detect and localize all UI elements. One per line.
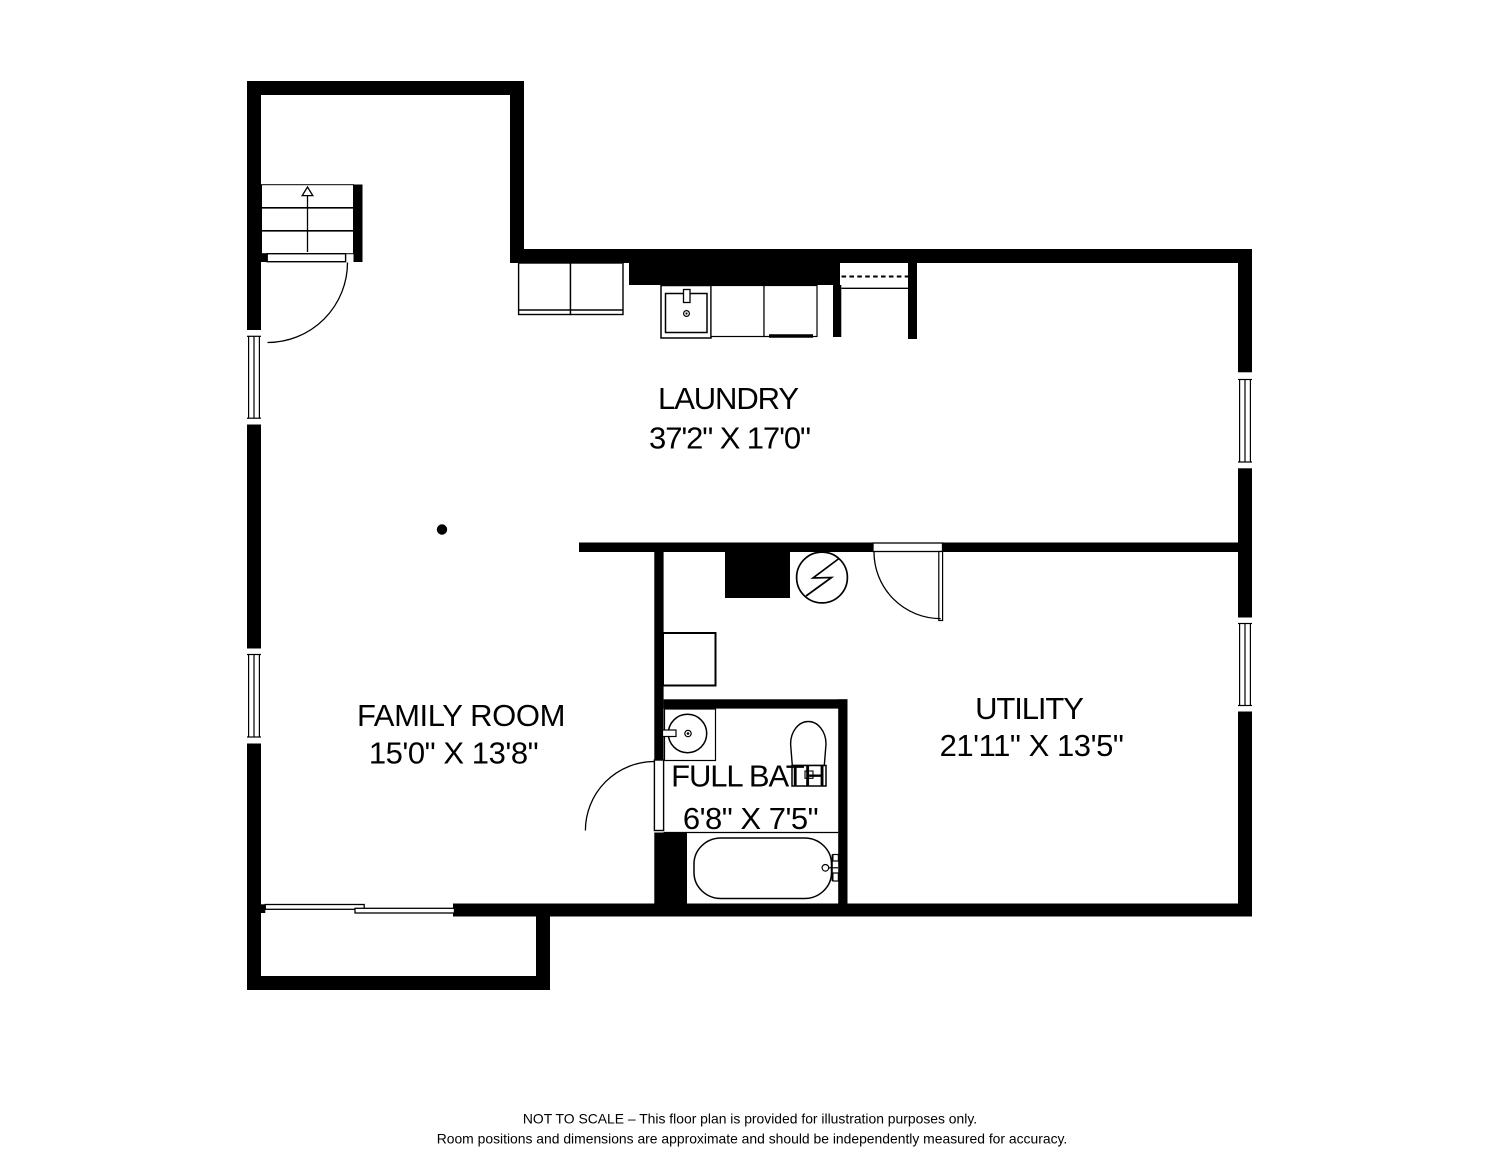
svg-text:NOT TO SCALE – This floor plan: NOT TO SCALE – This floor plan is provid… [523, 1111, 977, 1127]
svg-text:6'8" X 7'5": 6'8" X 7'5" [683, 801, 818, 836]
svg-text:UTILITY: UTILITY [975, 691, 1083, 726]
svg-text:21'11" X 13'5": 21'11" X 13'5" [940, 728, 1124, 763]
svg-text:FAMILY ROOM: FAMILY ROOM [357, 698, 565, 733]
svg-text:FULL BATH: FULL BATH [671, 759, 825, 794]
svg-text:Room positions and dimensions: Room positions and dimensions are approx… [437, 1131, 1068, 1147]
svg-text:37'2" X 17'0": 37'2" X 17'0" [649, 421, 810, 456]
svg-text:LAUNDRY: LAUNDRY [658, 381, 798, 416]
svg-text:15'0" X 13'8": 15'0" X 13'8" [369, 736, 538, 771]
